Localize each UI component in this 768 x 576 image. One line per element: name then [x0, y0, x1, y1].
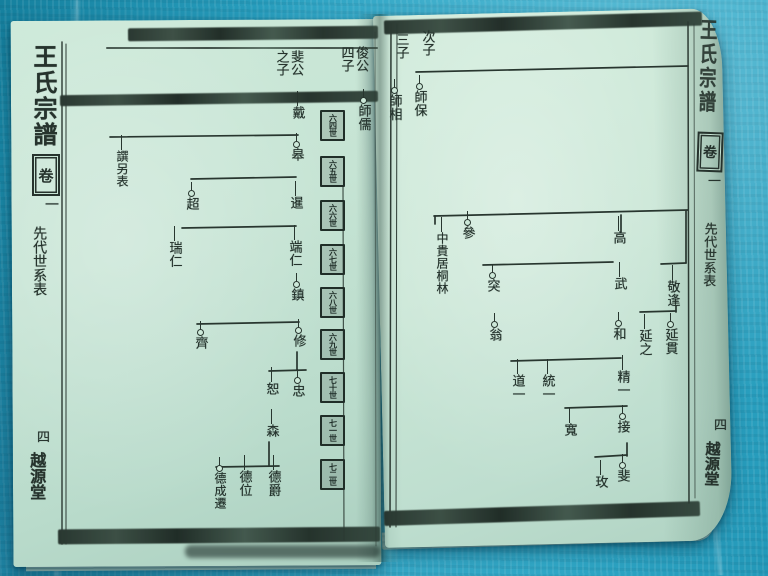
generation-box: 六四世: [320, 110, 345, 141]
book-title-right: 王氏宗譜: [697, 18, 716, 115]
volume-char: 卷: [703, 142, 718, 162]
page-number-right: 四: [710, 418, 729, 431]
tree-connector-lines: [0, 0, 768, 576]
tree-node: 戴: [289, 91, 306, 120]
generation-box: 六六世: [320, 200, 345, 231]
generation-box: 六七世: [320, 244, 345, 275]
tree-node: 延貫: [662, 313, 679, 355]
volume-number-left: 一: [40, 197, 60, 211]
tree-node: 暹: [287, 181, 304, 210]
section-label-right: 先代世系表: [700, 222, 717, 287]
generation-box: 七二世: [320, 459, 345, 490]
volume-cartouche-right: 卷: [696, 132, 723, 173]
tree-node: 超: [183, 182, 200, 211]
tree-node: 忠: [289, 369, 306, 398]
tree-node: 端仁: [286, 225, 303, 267]
hall-name-left: 越源堂: [26, 452, 45, 500]
tree-node: 師保: [411, 75, 428, 117]
volume-cartouche-left: 卷: [32, 154, 60, 196]
hall-name-right: 越源堂: [701, 441, 721, 487]
tree-node: 師儒: [355, 89, 372, 131]
generation-box: 六九世: [320, 329, 345, 360]
book-title-left: 王氏宗譜: [30, 44, 54, 148]
tree-node: 恕: [263, 367, 280, 396]
tree-node: 譔另表: [113, 135, 130, 188]
tree-node: 齊: [192, 321, 209, 350]
tree-node: 參: [459, 211, 476, 240]
tree-node: 中貴居桐林: [433, 217, 450, 295]
generation-box: 七十世: [320, 372, 345, 403]
tree-node: 高: [610, 216, 627, 245]
tree-node: 統一: [539, 359, 556, 401]
header-third-son: 三子: [394, 33, 409, 59]
tree-node: 玫: [592, 460, 609, 489]
tree-node: 德位: [236, 455, 253, 497]
tree-node: 皋: [288, 133, 305, 162]
generation-box: 七一世: [320, 415, 345, 446]
header-second-son: 次子: [420, 30, 435, 56]
tree-node: 延之: [636, 314, 653, 356]
tree-node: 寬: [561, 408, 578, 437]
volume-number-right: 一: [704, 174, 723, 187]
tree-node: 瑞仁: [166, 226, 183, 268]
header-fei-gong-sons: 斐公之子: [274, 50, 303, 83]
tree-node: 斐: [614, 454, 631, 483]
tree-node: 鎮: [288, 273, 305, 302]
page-number-left: 四: [33, 430, 52, 443]
generation-box: 六五世: [320, 156, 345, 187]
tree-node: 接: [614, 405, 631, 434]
tree-node: 敬逢: [664, 265, 681, 307]
tree-node: 道一: [509, 359, 526, 401]
tree-node: 森: [263, 409, 280, 438]
header-jun-gong-son4: 俊公四子: [339, 46, 368, 79]
tree-node: 翁: [486, 313, 503, 342]
tree-node: 精一: [614, 355, 631, 397]
tree-node: 師相: [386, 79, 403, 121]
tree-node: 德爵: [265, 455, 282, 497]
tree-node: 德成遷: [211, 457, 228, 510]
tree-node: 突: [484, 264, 501, 293]
tree-node: 和: [610, 312, 627, 341]
tree-node: 修: [290, 319, 307, 348]
tree-node: 武: [611, 262, 628, 291]
section-label-left: 先代世系表: [30, 226, 46, 296]
generation-box: 六八世: [320, 287, 345, 318]
volume-char: 卷: [38, 165, 53, 186]
genealogy-book-photo: 王氏宗譜 卷 一 先代世系表 四 越源堂 王氏宗譜 卷 一 先代世系表 四 越源…: [0, 0, 768, 576]
